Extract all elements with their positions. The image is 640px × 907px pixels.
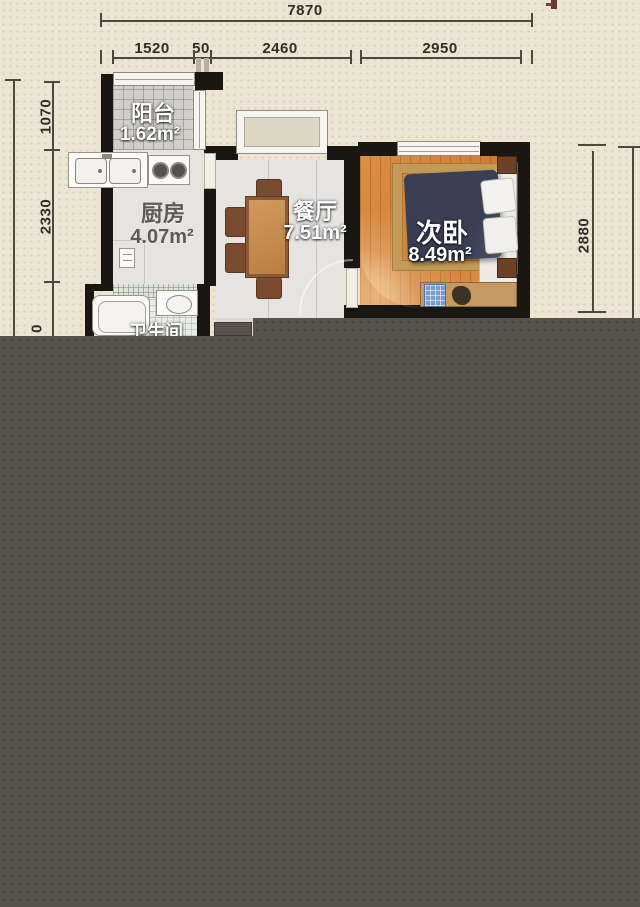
nightstand-top: [497, 156, 517, 174]
faucet-icon: [102, 154, 112, 159]
window-pane-line: [115, 79, 193, 80]
dim-tick: [578, 311, 606, 313]
dim-tick: [100, 50, 102, 64]
balcony-right-window: [193, 90, 206, 150]
dim-line-left-outer: [13, 80, 15, 336]
dim-line-right-outer: [632, 147, 634, 336]
desk-bag: [452, 286, 471, 305]
dim-tick: [578, 144, 606, 146]
window-pane-line: [399, 151, 479, 152]
kitchen-area: 4.07m²: [120, 226, 204, 249]
compass-needle-icon: [546, 3, 552, 6]
kitchen-meter-box: [119, 248, 135, 268]
floor-plan-canvas: 7870 1520 50 2460 2950 1070 2330 0 2880: [0, 0, 640, 907]
sink-basin: [109, 158, 141, 184]
hallway-cabinet: [214, 322, 252, 336]
dim-tick: [360, 50, 362, 64]
dim-top-seg-2460: 2460: [245, 40, 315, 57]
dim-top-seg-1520: 1520: [117, 40, 187, 57]
kitchen-sink-counter: [68, 152, 148, 188]
dining-bay-window-sill: [244, 117, 320, 147]
wall-balcony-top-right: [195, 72, 223, 90]
kitchen-stove: [148, 155, 190, 185]
wall-projection-mark: [196, 58, 201, 72]
bed-pillow: [482, 216, 518, 255]
washbasin-vanity: [156, 290, 198, 316]
dim-tick: [350, 50, 352, 64]
dim-line-top-chain-b: [360, 57, 520, 59]
wall-bedroom-right: [517, 142, 530, 318]
dim-tick: [100, 13, 102, 27]
dim-tick: [618, 146, 640, 148]
stove-burner-icon: [170, 162, 187, 179]
wall-bathroom-right: [197, 284, 210, 336]
dining-table-top: [249, 200, 285, 274]
kitchen-door-leaf: [204, 153, 216, 189]
dim-tick: [5, 79, 21, 81]
dim-line-top-total: [100, 20, 533, 22]
window-pane-line: [199, 92, 200, 148]
dim-tick: [210, 50, 212, 64]
dim-right-seg-2880: 2880: [576, 201, 593, 271]
dim-left-seg-1070: 1070: [38, 82, 55, 152]
washbasin-bowl: [166, 295, 192, 314]
dim-tick: [44, 281, 60, 283]
desk-chair: [424, 284, 446, 307]
dim-tick: [112, 50, 114, 64]
sink-drain: [132, 169, 136, 173]
loading-overlay-main: [0, 336, 640, 907]
balcony-area: 1.62m²: [108, 124, 192, 146]
loading-overlay-upper: [253, 318, 640, 336]
sink-drain: [98, 169, 102, 173]
wall-bedroom-top-a: [358, 142, 398, 156]
wall-left-lower: [101, 186, 113, 288]
dining-chair-left-2: [225, 243, 247, 273]
dim-tick: [531, 50, 533, 64]
window-pane-line: [399, 146, 479, 147]
dim-top-total: 7870: [260, 2, 350, 19]
nightstand-bottom: [497, 258, 517, 278]
dining-chair-bottom: [256, 277, 282, 299]
dim-top-seg-2950: 2950: [405, 40, 475, 57]
kitchen-label: 厨房: [123, 196, 203, 228]
wall-projection-mark: [204, 58, 209, 72]
balcony-top-window: [113, 72, 195, 86]
sink-basin: [75, 158, 107, 184]
dining-area: 7.51m²: [282, 222, 348, 245]
bed-pillow: [480, 177, 517, 215]
bedroom-area: 8.49m²: [406, 244, 474, 267]
wall-bedroom-left: [344, 150, 360, 268]
dim-tick: [520, 50, 522, 64]
bedroom-top-window: [397, 141, 481, 156]
dim-tick: [193, 50, 195, 64]
dim-line-top-chain-a: [112, 57, 350, 59]
dim-tick: [531, 13, 533, 27]
dining-chair-left-1: [225, 207, 247, 237]
stove-burner-icon: [152, 162, 169, 179]
dim-left-seg-2330: 2330: [38, 182, 55, 252]
meter-line: [123, 260, 132, 261]
meter-line: [123, 254, 132, 255]
